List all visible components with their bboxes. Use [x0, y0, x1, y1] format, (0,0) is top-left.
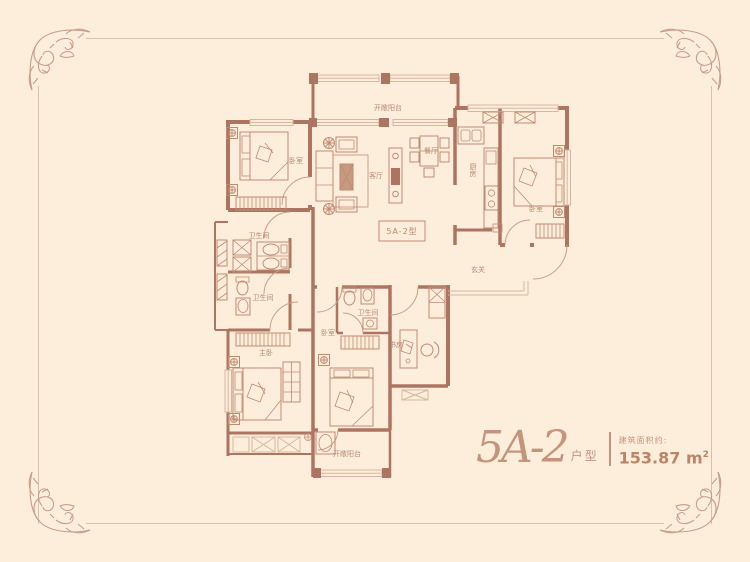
- decorative-frame-right: [711, 86, 712, 524]
- room-label-bath-3: 卫生间: [358, 308, 379, 317]
- unit-code-box: 5A-2型: [379, 221, 425, 241]
- corner-ornament-top-left: [26, 26, 96, 96]
- room-label-bedroom-nw: 卧室: [289, 156, 303, 165]
- window-layer: [217, 73, 571, 478]
- decorative-frame-bottom: [86, 523, 664, 524]
- room-label-bath-1: 卫生间: [249, 231, 270, 240]
- room-label-bath-2: 卫生间: [253, 293, 274, 302]
- room-label-living: 客厅: [369, 171, 383, 180]
- room-label-study: 书房: [389, 340, 403, 349]
- area-info: 建筑面积约: 153.87 m2: [619, 435, 709, 467]
- room-label-entry: 玄关: [471, 265, 485, 274]
- decorative-frame-left: [38, 86, 39, 524]
- room-label-dining: 餐厅: [424, 146, 438, 155]
- room-label-kitchen: 厨房: [469, 163, 477, 178]
- title-divider: [609, 432, 611, 466]
- door-layer: [264, 177, 567, 450]
- furniture-layer: [227, 112, 565, 454]
- room-label-master: 主卧: [259, 348, 273, 357]
- area-value: 153.87 m2: [619, 446, 709, 467]
- unit-code-text: 5A-2型: [386, 227, 417, 236]
- unit-type-script: 5A-2: [476, 428, 567, 468]
- room-label-balcony-bottom: 开敞阳台: [333, 449, 361, 458]
- area-number: 153.87: [619, 448, 681, 467]
- room-label-bedroom-ne: 卧室: [529, 204, 543, 213]
- area-label: 建筑面积约:: [619, 435, 709, 446]
- area-unit: m: [686, 448, 703, 467]
- title-block: 5A-2 户型 建筑面积约: 153.87 m2: [476, 428, 709, 468]
- room-label-bedroom-s: 卧室: [321, 328, 335, 337]
- corner-ornament-bottom-right: [654, 466, 724, 536]
- decorative-frame-top: [86, 38, 664, 39]
- corner-ornament-bottom-left: [26, 466, 96, 536]
- page: 5A-2型 开敞阳台 客厅 餐厅 卧室 厨房 卧室 卫生间 卫生间 玄关 主卧 …: [0, 0, 750, 562]
- corner-ornament-top-right: [654, 26, 724, 96]
- unit-type-suffix: 户型: [571, 447, 599, 464]
- area-exponent: 2: [703, 450, 709, 460]
- room-label-balcony-top: 开敞阳台: [374, 103, 402, 112]
